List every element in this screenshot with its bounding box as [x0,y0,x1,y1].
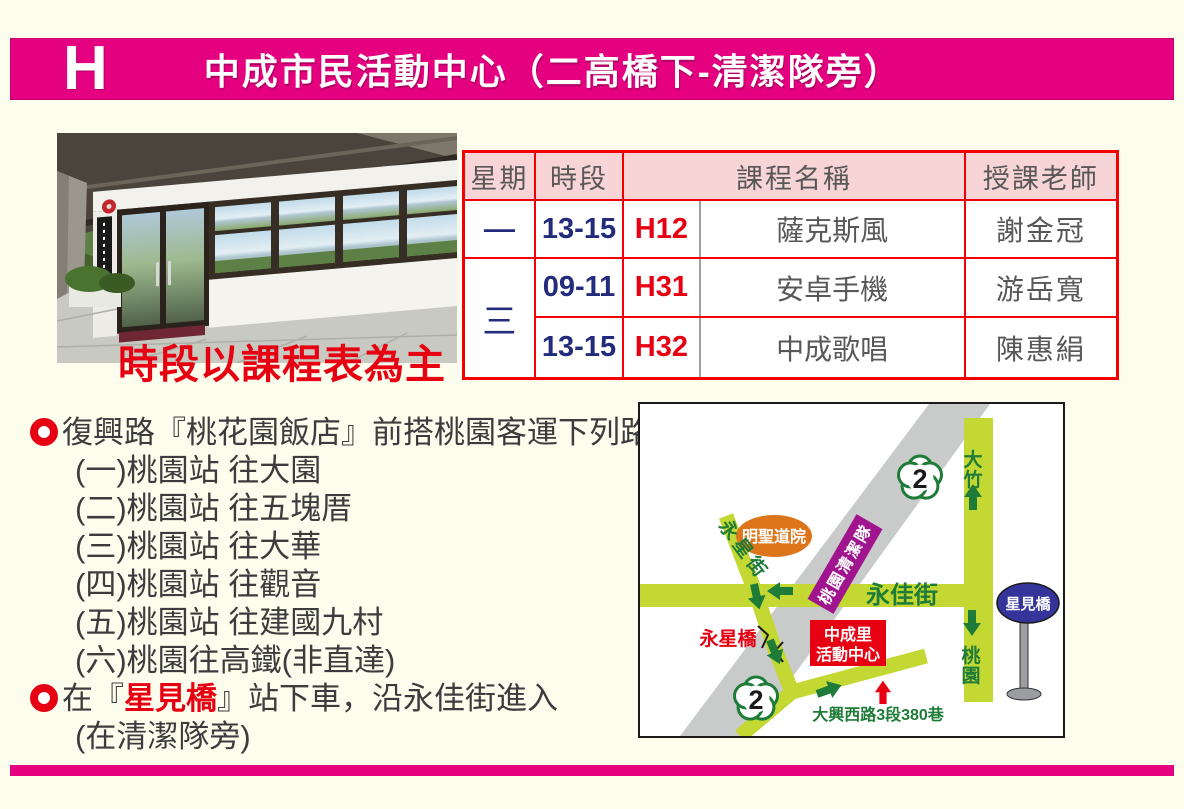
route-number: 2 [748,685,763,715]
course-code-cell: H12 [623,200,699,258]
route-item: (三)桃園站 往大華 [30,528,655,566]
bush [99,273,135,293]
schedule-table: 星期 時段 課程名稱 授課老師 一 13-15 H12 薩克斯風 謝金冠 三 0… [462,150,1119,380]
route-map: 桃園清潔隊 2 2 明聖道院 中成里 活動中心 星見橋 [638,402,1065,738]
col-header-course: 課程名稱 [623,152,965,201]
dazhu-label: 大竹 [962,448,982,491]
course-name-cell: 薩克斯風 [700,200,965,258]
daxing-road-label: 大興西路3段380巷 [812,705,945,724]
time-cell: 13-15 [535,317,623,379]
col-header-teacher: 授課老師 [965,152,1118,201]
taoyuan-label: 桃園 [961,644,980,687]
activity-center-label-2: 活動中心 [816,645,880,664]
schedule-row: 三 09-11 H31 安卓手機 游岳寬 [464,258,1118,317]
yongxing-bridge-label: 永星橋 [698,627,757,650]
route-item: (五)桃園站 往建國九村 [30,604,655,642]
day-cell: 三 [464,258,535,379]
course-code-cell: H32 [623,317,699,379]
bus-stop-name: 星見橋 [124,681,217,716]
route-item: (一)桃園站 往大園 [30,452,655,490]
photo-caption: 時段以課程表為主 [118,332,446,390]
teacher-cell: 謝金冠 [965,200,1118,258]
bus-stop-sign: 星見橋 [997,583,1059,700]
time-cell: 13-15 [535,200,623,258]
teacher-cell: 游岳寬 [965,258,1118,317]
col-header-day: 星期 [464,152,535,201]
bottom-accent-bar [10,765,1174,776]
stop-instruction: 在『星見橋』站下車，沿永佳街進入 [30,680,655,718]
teacher-cell: 陳惠絹 [965,317,1118,379]
course-name-cell: 安卓手機 [700,258,965,317]
entrance-doors [117,202,209,334]
route-item: (六)桃園往高鐵(非直達) [30,642,655,680]
schedule-header-row: 星期 時段 課程名稱 授課老師 [464,152,1118,201]
flyer-page: { "page": { "colors": { "bg": "#FDFDEE",… [0,0,1184,809]
route-item: (二)桃園站 往五塊厝 [30,490,655,528]
page-title: 中成市民活動中心（二高橋下-清潔隊旁） [204,43,902,95]
schedule-row: 一 13-15 H12 薩克斯風 謝金冠 [464,200,1118,258]
time-cell: 09-11 [535,258,623,317]
circle-bullet-icon [30,684,58,712]
circle-bullet-icon [30,418,58,446]
bus-stop-label: 星見橋 [1005,595,1051,613]
schedule-row: 13-15 H32 中成歌唱 陳惠絹 [464,317,1118,379]
route-number: 2 [912,464,927,494]
yongjia-street-label: 永佳街 [866,581,938,609]
route-item: (四)桃園站 往觀音 [30,566,655,604]
course-name-cell: 中成歌唱 [700,317,965,379]
directions-intro: 復興路『桃花園飯店』前搭桃園客運下列路線 [30,414,655,452]
stop-note: (在清潔隊旁) [30,718,655,756]
header-banner: H 中成市民活動中心（二高橋下-清潔隊旁） [10,38,1174,100]
course-code-cell: H31 [623,258,699,317]
arrow-entry-red [875,681,891,704]
day-cell: 一 [464,200,535,258]
directions-list: 復興路『桃花園飯店』前搭桃園客運下列路線 (一)桃園站 往大園 (二)桃園站 往… [30,414,655,756]
col-header-time: 時段 [535,152,623,201]
section-letter: H [63,38,108,100]
activity-center-label-1: 中成里 [824,625,872,644]
facility-photo [57,133,457,363]
